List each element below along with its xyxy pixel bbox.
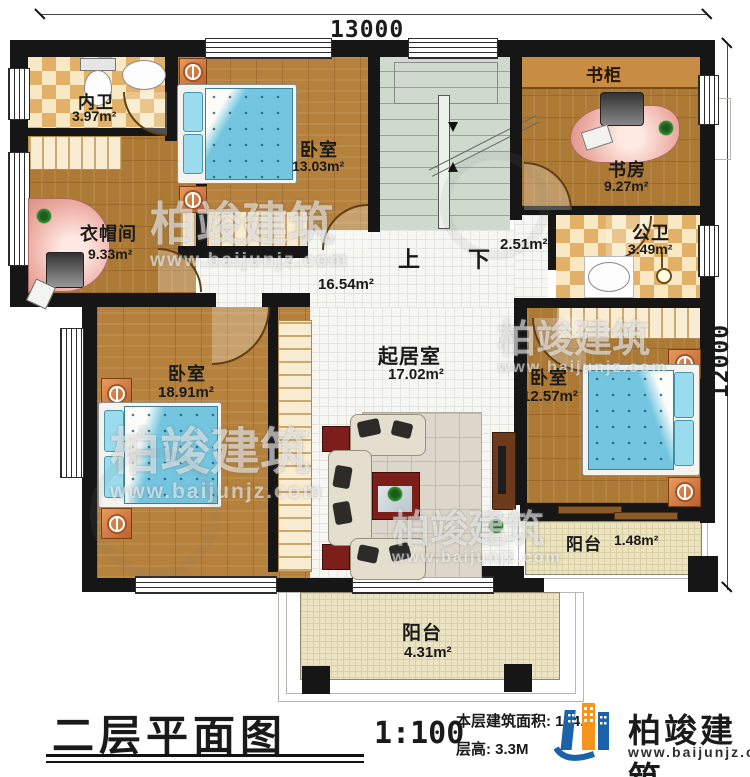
pillow [183, 92, 203, 132]
watermark-logo-ghost [90, 448, 220, 578]
wardrobe-bedroom-left [278, 320, 312, 572]
pillow [674, 372, 694, 418]
pillow [104, 410, 124, 452]
room-area-bedroom-top: 13.03m² [292, 158, 344, 174]
sliding-door-panel [558, 506, 622, 514]
column-balcony-bottom-right [504, 664, 532, 692]
window-top-1 [205, 38, 332, 59]
side-table [322, 544, 350, 570]
sofa-left [328, 450, 372, 546]
brand-logo-icon [550, 698, 622, 766]
column-balcony-bottom-left [302, 666, 330, 694]
nightstand [668, 477, 701, 507]
wall-bedroomright-top [514, 298, 700, 308]
wall-left-lower [82, 293, 97, 592]
sink-icon [588, 262, 630, 292]
lamp-icon [109, 386, 125, 402]
wall-bedroomleft-top-a [97, 293, 216, 307]
plant-icon [658, 120, 674, 136]
bed-mattress [588, 370, 674, 470]
lamp-icon [677, 484, 693, 500]
tv-icon [498, 446, 506, 494]
room-area-bedroom-left: 18.91m² [158, 384, 214, 401]
pillow [674, 420, 694, 466]
shower-icon [656, 268, 672, 284]
balcony-right-floor [525, 521, 702, 575]
window-left-2 [8, 152, 30, 266]
dimension-line-top [40, 14, 708, 15]
wall-bedroomleft-top-b [262, 293, 310, 307]
room-area-bedroom-right: 12.57m² [522, 388, 578, 405]
stairs-down-label: 下 [468, 242, 491, 274]
room-area-study: 9.27m² [604, 178, 648, 194]
window-left-1 [8, 68, 30, 120]
plan-scale: 1:100 [374, 716, 464, 751]
title-underline [46, 754, 364, 763]
plant-icon [387, 486, 403, 502]
stairs-up-label: 上 [398, 242, 421, 274]
room-area-public-bath: 3.49m² [628, 241, 672, 257]
pillow [183, 134, 203, 174]
wall-stairs-left [368, 48, 380, 232]
side-table [322, 426, 350, 452]
window-top-2 [408, 38, 498, 59]
room-area-living: 17.02m² [388, 366, 444, 383]
window-right-1 [698, 75, 719, 125]
stair-arrow-down-icon [448, 122, 458, 132]
closet-inner-bath [28, 136, 122, 170]
room-area-hallway: 16.54m² [318, 276, 374, 293]
window-left-3 [60, 328, 84, 478]
window-right-2 [698, 225, 719, 277]
sliding-door-panel [614, 512, 678, 520]
lamp-icon [185, 192, 201, 208]
nightstand [179, 186, 207, 213]
lamp-icon [185, 64, 201, 80]
window-bottom-1 [135, 576, 277, 594]
brand-name: 柏竣建筑 [628, 704, 750, 777]
room-name-bedroom-left: 卧室 [168, 360, 206, 386]
plant-icon [488, 518, 504, 534]
room-name-bedroom-right: 卧室 [530, 364, 568, 390]
column-balcony-right [688, 556, 718, 592]
room-area-cloakroom: 9.33m² [88, 246, 132, 262]
wall-wardrobe-side [268, 307, 278, 572]
room-name-cloakroom: 衣帽间 [80, 220, 137, 246]
room-area-inner-bath: 3.97m² [72, 108, 116, 124]
room-area-small-hall: 2.51m² [500, 236, 548, 253]
room-name-balcony-right: 阳台 [566, 530, 602, 555]
room-area-balcony-right: 1.48m² [614, 532, 658, 548]
wall-smallhall-right [548, 215, 556, 270]
floor-height-text: 层高: 3.3M [456, 738, 529, 759]
brand-website: www.baijunjz.com [628, 744, 750, 760]
plant-icon [36, 208, 52, 224]
room-name-balcony-bottom: 阳台 [402, 618, 442, 645]
room-name-bookcase: 书柜 [586, 61, 622, 86]
wall-bedroomtop-bottom [178, 246, 308, 258]
floorplan-canvas: 13000 12000 [0, 0, 750, 777]
computer-monitor-icon [600, 92, 644, 126]
sink-icon [122, 60, 166, 90]
cushion [332, 501, 353, 526]
bed-mattress [205, 88, 293, 180]
wall-top [10, 40, 715, 57]
nightstand [179, 58, 207, 85]
room-name-living: 起居室 [378, 340, 441, 369]
room-area-balcony-bottom: 4.31m² [404, 644, 452, 661]
computer-monitor-icon [46, 252, 84, 288]
